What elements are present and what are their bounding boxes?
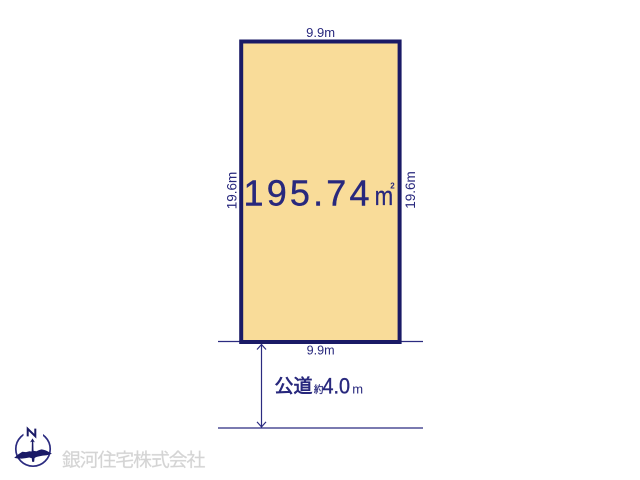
svg-text:9.9m: 9.9m — [306, 25, 335, 40]
svg-text:m: m — [352, 382, 363, 397]
svg-text:195.74: 195.74 — [244, 173, 370, 214]
svg-text:2: 2 — [390, 182, 395, 191]
svg-text:19.6m: 19.6m — [224, 172, 239, 210]
svg-text:19.6m: 19.6m — [403, 171, 418, 209]
svg-text:9.9m: 9.9m — [307, 344, 335, 358]
svg-text:4.0: 4.0 — [323, 374, 351, 399]
